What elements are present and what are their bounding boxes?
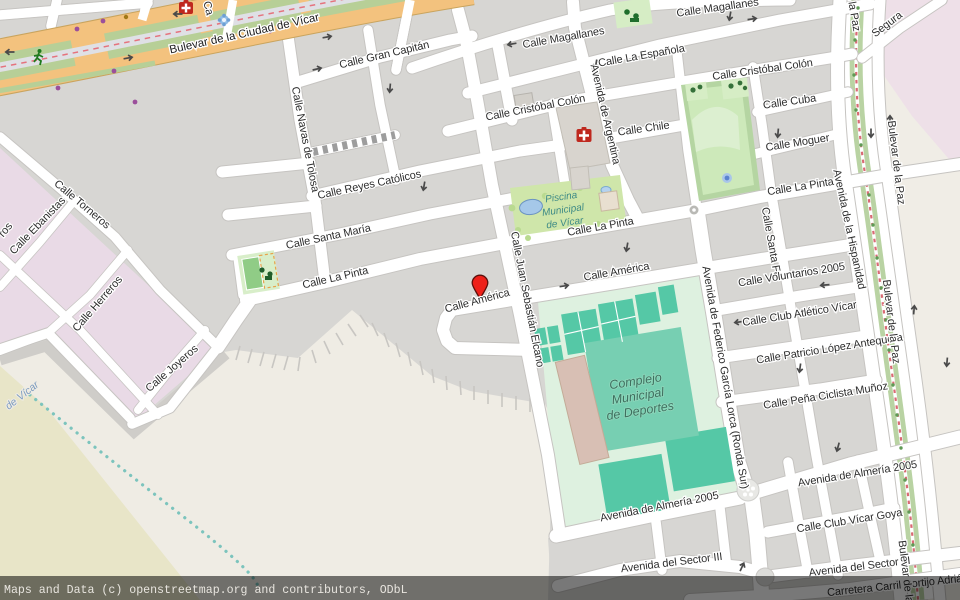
svg-text:Maps and Data (c) openstreetma: Maps and Data (c) openstreetmap.org and …	[4, 584, 408, 597]
